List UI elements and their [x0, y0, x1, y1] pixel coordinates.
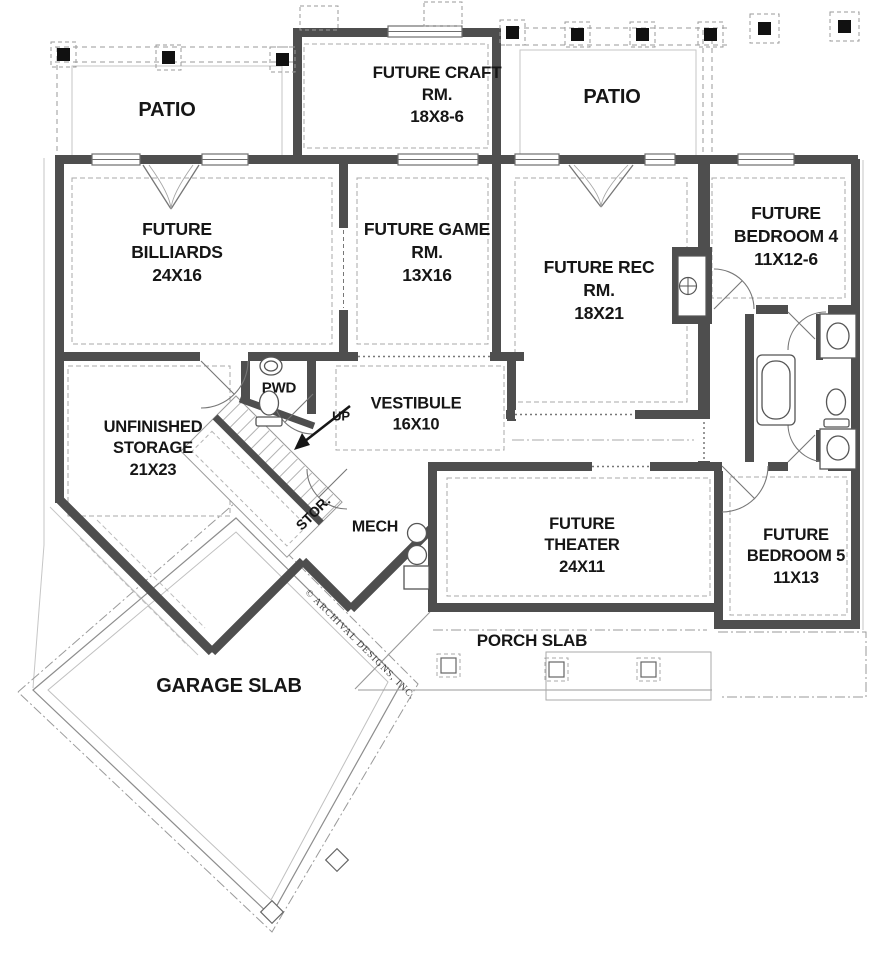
room-label-bedroom-5: FUTURE BEDROOM 511X13 — [731, 525, 861, 589]
room-label-garage: GARAGE SLAB — [156, 673, 302, 699]
room-label-vestibule: VESTIBULE16X10 — [346, 394, 486, 437]
stair-up-label: UP — [332, 409, 350, 426]
room-label-game-room: FUTURE GAME RM.13X16 — [360, 218, 495, 286]
mechanical-equipment — [404, 524, 429, 590]
room-label-powder: PWD — [262, 378, 296, 398]
room-label-mech: MECH — [352, 518, 398, 539]
room-label-patio-left: PATIO — [138, 97, 195, 123]
porch-post — [641, 662, 656, 677]
porch-post — [549, 662, 564, 677]
room-label-craft-room: FUTURE CRAFT RM.18X8-6 — [367, 62, 507, 128]
room-label-porch: PORCH SLAB — [477, 630, 587, 652]
room-label-bedroom-4: FUTURE BEDROOM 411X12-6 — [719, 202, 854, 270]
porch-post — [441, 658, 456, 673]
room-label-patio-right: PATIO — [583, 84, 640, 110]
floor-plan: PATIO FUTURE CRAFT RM.18X8-6 PATIO FUTUR… — [0, 0, 892, 960]
room-label-billiards: FUTURE BILLIARDS24X16 — [102, 218, 252, 286]
room-label-storage: UNFINISHED STORAGE21X23 — [91, 417, 216, 481]
fireplace — [672, 247, 712, 324]
room-label-theater: FUTURE THEATER24X11 — [525, 514, 640, 578]
room-label-rec-room: FUTURE REC RM.18X21 — [539, 256, 659, 324]
